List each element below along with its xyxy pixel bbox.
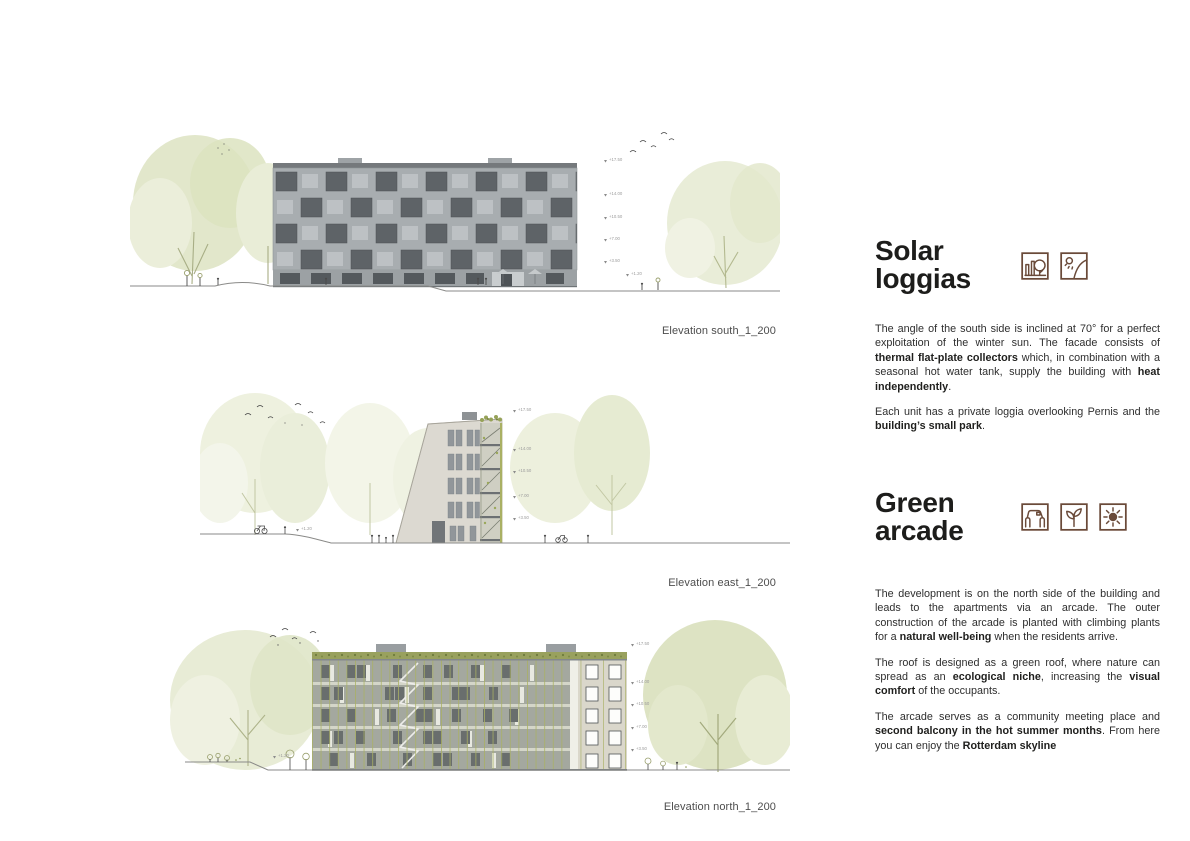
paragraph: Each unit has a private loggia overlooki… xyxy=(875,405,1160,434)
svg-text:+17.50: +17.50 xyxy=(518,407,532,412)
svg-text:+14.00: +14.00 xyxy=(609,191,623,196)
building-north xyxy=(312,644,627,771)
svg-text:+7.00: +7.00 xyxy=(518,493,529,498)
paragraph: The angle of the south side is inclined … xyxy=(875,322,1160,394)
section-title-green-arcade: Green arcade xyxy=(875,489,964,545)
svg-text:+10.50: +10.50 xyxy=(609,214,623,219)
section-title-solar-loggias: Solar loggias xyxy=(875,237,971,293)
solar-loggias-text: The angle of the south side is inclined … xyxy=(875,322,1160,445)
green-roof xyxy=(312,652,627,659)
svg-text:+1.20: +1.20 xyxy=(301,526,312,531)
elevation-drawing-south: +17.50 +14.00 +10.50 +7.00 +3.50 +1.20 xyxy=(130,128,780,313)
arcade-strip xyxy=(480,423,502,543)
svg-text:+17.50: +17.50 xyxy=(636,641,650,646)
svg-text:+10.50: +10.50 xyxy=(518,468,532,473)
svg-text:+14.00: +14.00 xyxy=(518,446,532,451)
svg-text:+3.50: +3.50 xyxy=(636,746,647,751)
entrance-door xyxy=(432,521,445,543)
sun-icon xyxy=(1099,503,1127,531)
svg-text:+7.00: +7.00 xyxy=(609,236,620,241)
arcade-icon xyxy=(1021,503,1049,531)
svg-text:+1.20: +1.20 xyxy=(631,271,642,276)
paragraph: The development is on the north side of … xyxy=(875,587,1160,645)
paragraph: The roof is designed as a green roof, wh… xyxy=(875,656,1160,699)
caption-elevation-north: Elevation north_1_200 xyxy=(560,801,776,813)
caption-elevation-south: Elevation south_1_200 xyxy=(560,325,776,337)
presentation-sheet: +17.50 +14.00 +10.50 +7.00 +3.50 +1.20 E… xyxy=(0,0,1190,841)
plant-icon xyxy=(1060,503,1088,531)
park-icon xyxy=(1021,252,1049,280)
level-markers: +17.50 +14.00 +10.50 +7.00 +3.50 +1.20 xyxy=(604,157,642,277)
svg-text:+14.00: +14.00 xyxy=(636,679,650,684)
svg-text:+3.50: +3.50 xyxy=(518,515,529,520)
climbing-plant-grid xyxy=(312,661,570,770)
elevation-drawing-north: +17.50 +14.00 +10.50 +7.00 +3.50 +1.20 xyxy=(170,610,790,810)
solar-loggias-icons xyxy=(1021,252,1088,280)
svg-text:+17.50: +17.50 xyxy=(609,157,623,162)
building-south xyxy=(273,158,577,287)
sun-slope-icon xyxy=(1060,252,1088,280)
svg-text:+10.50: +10.50 xyxy=(636,701,650,706)
roof-plants xyxy=(480,415,502,422)
birds xyxy=(217,133,674,155)
tree-left xyxy=(170,630,330,770)
caption-elevation-east: Elevation east_1_200 xyxy=(560,577,776,589)
tree-right xyxy=(665,161,780,288)
svg-text:+7.00: +7.00 xyxy=(636,724,647,729)
svg-text:+1.20: +1.20 xyxy=(278,753,289,758)
paragraph: The arcade serves as a community meeting… xyxy=(875,710,1160,753)
elevation-drawing-east: +17.50 +14.00 +10.50 +7.00 +3.50 +1.20 xyxy=(200,383,790,563)
green-arcade-icons xyxy=(1021,503,1127,531)
green-arcade-text: The development is on the north side of … xyxy=(875,587,1160,764)
svg-text:+3.50: +3.50 xyxy=(609,258,620,263)
tree-right xyxy=(643,620,790,772)
